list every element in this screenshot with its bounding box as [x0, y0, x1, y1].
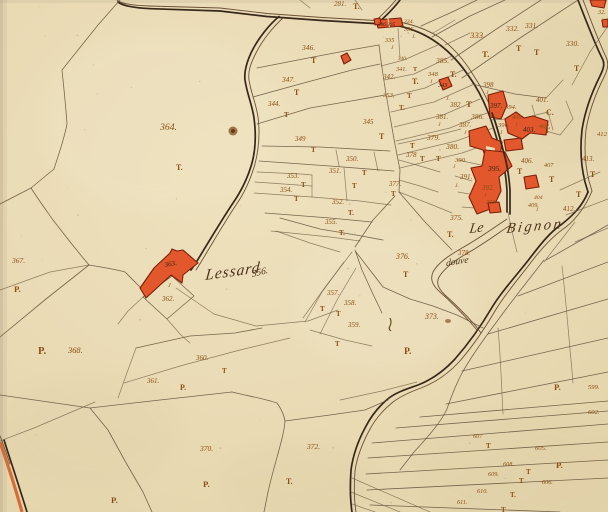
svg-text:396.395: 396.395 [378, 22, 396, 28]
svg-text:333.: 333. [469, 30, 485, 40]
svg-text:348: 348 [427, 71, 439, 78]
svg-text:367.: 367. [11, 256, 25, 265]
svg-text:373.: 373. [424, 312, 439, 321]
svg-text:T: T [526, 468, 531, 476]
svg-text:T: T [590, 170, 596, 179]
svg-text:379.: 379. [426, 133, 440, 142]
svg-text:351.: 351. [328, 167, 342, 175]
svg-text:394.: 394. [504, 104, 517, 111]
svg-text:P.: P. [38, 346, 46, 357]
svg-text:T: T [517, 167, 523, 176]
svg-text:T: T [362, 169, 367, 177]
svg-text:406.: 406. [521, 157, 534, 165]
svg-text:336.: 336. [403, 26, 415, 33]
svg-text:J: J [168, 282, 171, 289]
svg-text:352.: 352. [331, 198, 345, 206]
svg-text:T: T [534, 48, 540, 57]
svg-text:T: T [407, 92, 412, 100]
svg-text:P.: P. [556, 460, 563, 470]
svg-text:T: T [391, 190, 396, 198]
svg-text:P.: P. [111, 495, 118, 505]
svg-text:396: 396 [497, 122, 509, 129]
svg-text:354.: 354. [279, 186, 293, 194]
svg-text:32.: 32. [597, 9, 606, 16]
svg-text:380.: 380. [445, 142, 459, 151]
svg-text:T.: T. [339, 229, 345, 237]
svg-text:404: 404 [534, 195, 543, 201]
svg-text:353,: 353, [382, 92, 395, 99]
svg-text:T: T [576, 190, 582, 199]
svg-text:T: T [410, 142, 415, 150]
svg-text:395.: 395. [487, 164, 501, 173]
svg-text:407: 407 [544, 162, 554, 169]
svg-text:368.: 368. [67, 346, 83, 355]
svg-text:T: T [403, 270, 409, 279]
svg-text:359.: 359. [347, 321, 361, 329]
svg-text:342.: 342. [382, 73, 396, 81]
svg-text:350.: 350. [345, 155, 359, 163]
svg-text:392.: 392. [481, 184, 495, 192]
svg-text:T: T [311, 56, 317, 65]
svg-text:347.: 347. [281, 75, 295, 84]
svg-text:349: 349 [294, 135, 306, 143]
svg-text:T: T [486, 442, 491, 450]
svg-text:340.: 340. [398, 56, 407, 62]
svg-text:341.: 341. [395, 66, 407, 73]
svg-text:362.: 362. [161, 295, 175, 303]
svg-text:332.: 332. [505, 24, 519, 33]
svg-text:364.: 364. [159, 122, 177, 133]
svg-text:T: T [222, 367, 227, 375]
svg-text:T: T [335, 340, 340, 348]
svg-text:353.: 353. [286, 172, 300, 180]
svg-text:T: T [420, 155, 425, 163]
svg-text:T: T [301, 181, 306, 189]
svg-text:361.: 361. [146, 377, 160, 385]
svg-text:403.: 403. [523, 126, 536, 134]
svg-text:T.: T. [348, 209, 354, 217]
svg-text:330.: 330. [565, 39, 579, 48]
svg-text:610.: 610. [477, 488, 488, 495]
svg-text:T: T [284, 111, 289, 119]
svg-text:T: T [466, 99, 472, 109]
svg-text:602.: 602. [588, 409, 600, 416]
svg-text:T: T [574, 64, 580, 73]
svg-text:391.: 391. [459, 173, 473, 181]
svg-text:P.: P. [14, 284, 21, 294]
svg-text:334.: 334. [403, 19, 414, 25]
svg-text:J.: J. [446, 96, 450, 102]
svg-text:393: 393 [485, 199, 495, 206]
svg-text:385.: 385. [435, 56, 449, 65]
svg-text:T: T [320, 305, 325, 313]
svg-text:375.: 375. [449, 213, 463, 222]
svg-text:335: 335 [384, 37, 394, 44]
svg-text:413.: 413. [582, 155, 595, 163]
svg-text:P.: P. [554, 382, 561, 392]
svg-text:401.: 401. [536, 96, 549, 104]
svg-text:T: T [549, 175, 555, 184]
svg-text:T: T [379, 132, 385, 141]
svg-text:T.: T. [286, 477, 293, 486]
svg-text:T.: T. [447, 230, 454, 239]
svg-text:412.: 412. [563, 205, 576, 213]
svg-text:T: T [436, 155, 441, 163]
svg-text:378.: 378. [457, 249, 471, 257]
svg-text:T: T [311, 146, 316, 154]
svg-text:376.: 376. [395, 252, 410, 261]
svg-text:397.: 397. [489, 102, 503, 110]
svg-text:357.: 357. [326, 289, 340, 297]
svg-text:412: 412 [597, 131, 608, 138]
svg-text:T.: T. [399, 104, 405, 112]
svg-text:343: 343 [437, 82, 447, 89]
svg-text:T.: T. [353, 2, 360, 11]
svg-text:J.: J. [412, 34, 416, 40]
svg-text:358.: 358. [343, 299, 357, 307]
svg-text:T.: T. [450, 70, 457, 79]
svg-text:390.: 390. [454, 157, 467, 164]
svg-text:T.: T. [412, 77, 419, 86]
svg-text:P.: P. [404, 346, 411, 357]
svg-text:605.: 605. [535, 445, 547, 452]
svg-text:606.: 606. [542, 479, 553, 486]
svg-text:T: T [294, 195, 299, 203]
svg-text:400: 400 [512, 114, 522, 121]
svg-text:387.: 387. [458, 121, 472, 129]
svg-text:T: T [336, 310, 341, 318]
svg-text:344.: 344. [267, 100, 281, 108]
svg-text:Le: Le [467, 219, 484, 237]
svg-text:T: T [294, 88, 300, 97]
svg-text:607: 607 [473, 433, 483, 440]
svg-text:609.: 609. [488, 471, 499, 478]
svg-text:345: 345 [362, 118, 374, 126]
svg-text:378: 378 [405, 151, 417, 159]
svg-text:382: 382 [449, 101, 461, 109]
svg-text:T: T [516, 44, 522, 53]
svg-text:T.: T. [510, 491, 516, 499]
svg-text:T: T [352, 182, 357, 190]
svg-text:P.: P. [203, 479, 210, 489]
svg-text:P.: P. [180, 383, 186, 392]
svg-text:C.: C. [546, 108, 554, 117]
svg-text:T: T [501, 506, 506, 512]
svg-text:T: T [519, 477, 524, 485]
svg-text:360.: 360. [195, 354, 209, 362]
svg-text:T.: T. [176, 163, 183, 172]
svg-text:346.: 346. [301, 43, 315, 52]
svg-text:331.: 331. [524, 21, 538, 30]
svg-text:398: 398 [482, 81, 494, 89]
svg-text:372.: 372. [306, 442, 320, 451]
svg-text:355.: 355. [324, 218, 338, 226]
svg-text:T.: T. [482, 49, 489, 59]
svg-text:377.: 377. [388, 180, 402, 188]
svg-text:381.: 381. [435, 113, 449, 121]
svg-text:599.: 599. [588, 384, 600, 391]
svg-text:T: T [545, 127, 550, 135]
svg-text:J.: J. [455, 183, 459, 189]
svg-text:611.: 611. [457, 499, 467, 506]
svg-text:608.: 608. [503, 461, 514, 468]
svg-text:370.: 370. [199, 444, 213, 453]
svg-text:281.: 281. [334, 0, 347, 8]
svg-text:386.: 386. [470, 112, 484, 121]
